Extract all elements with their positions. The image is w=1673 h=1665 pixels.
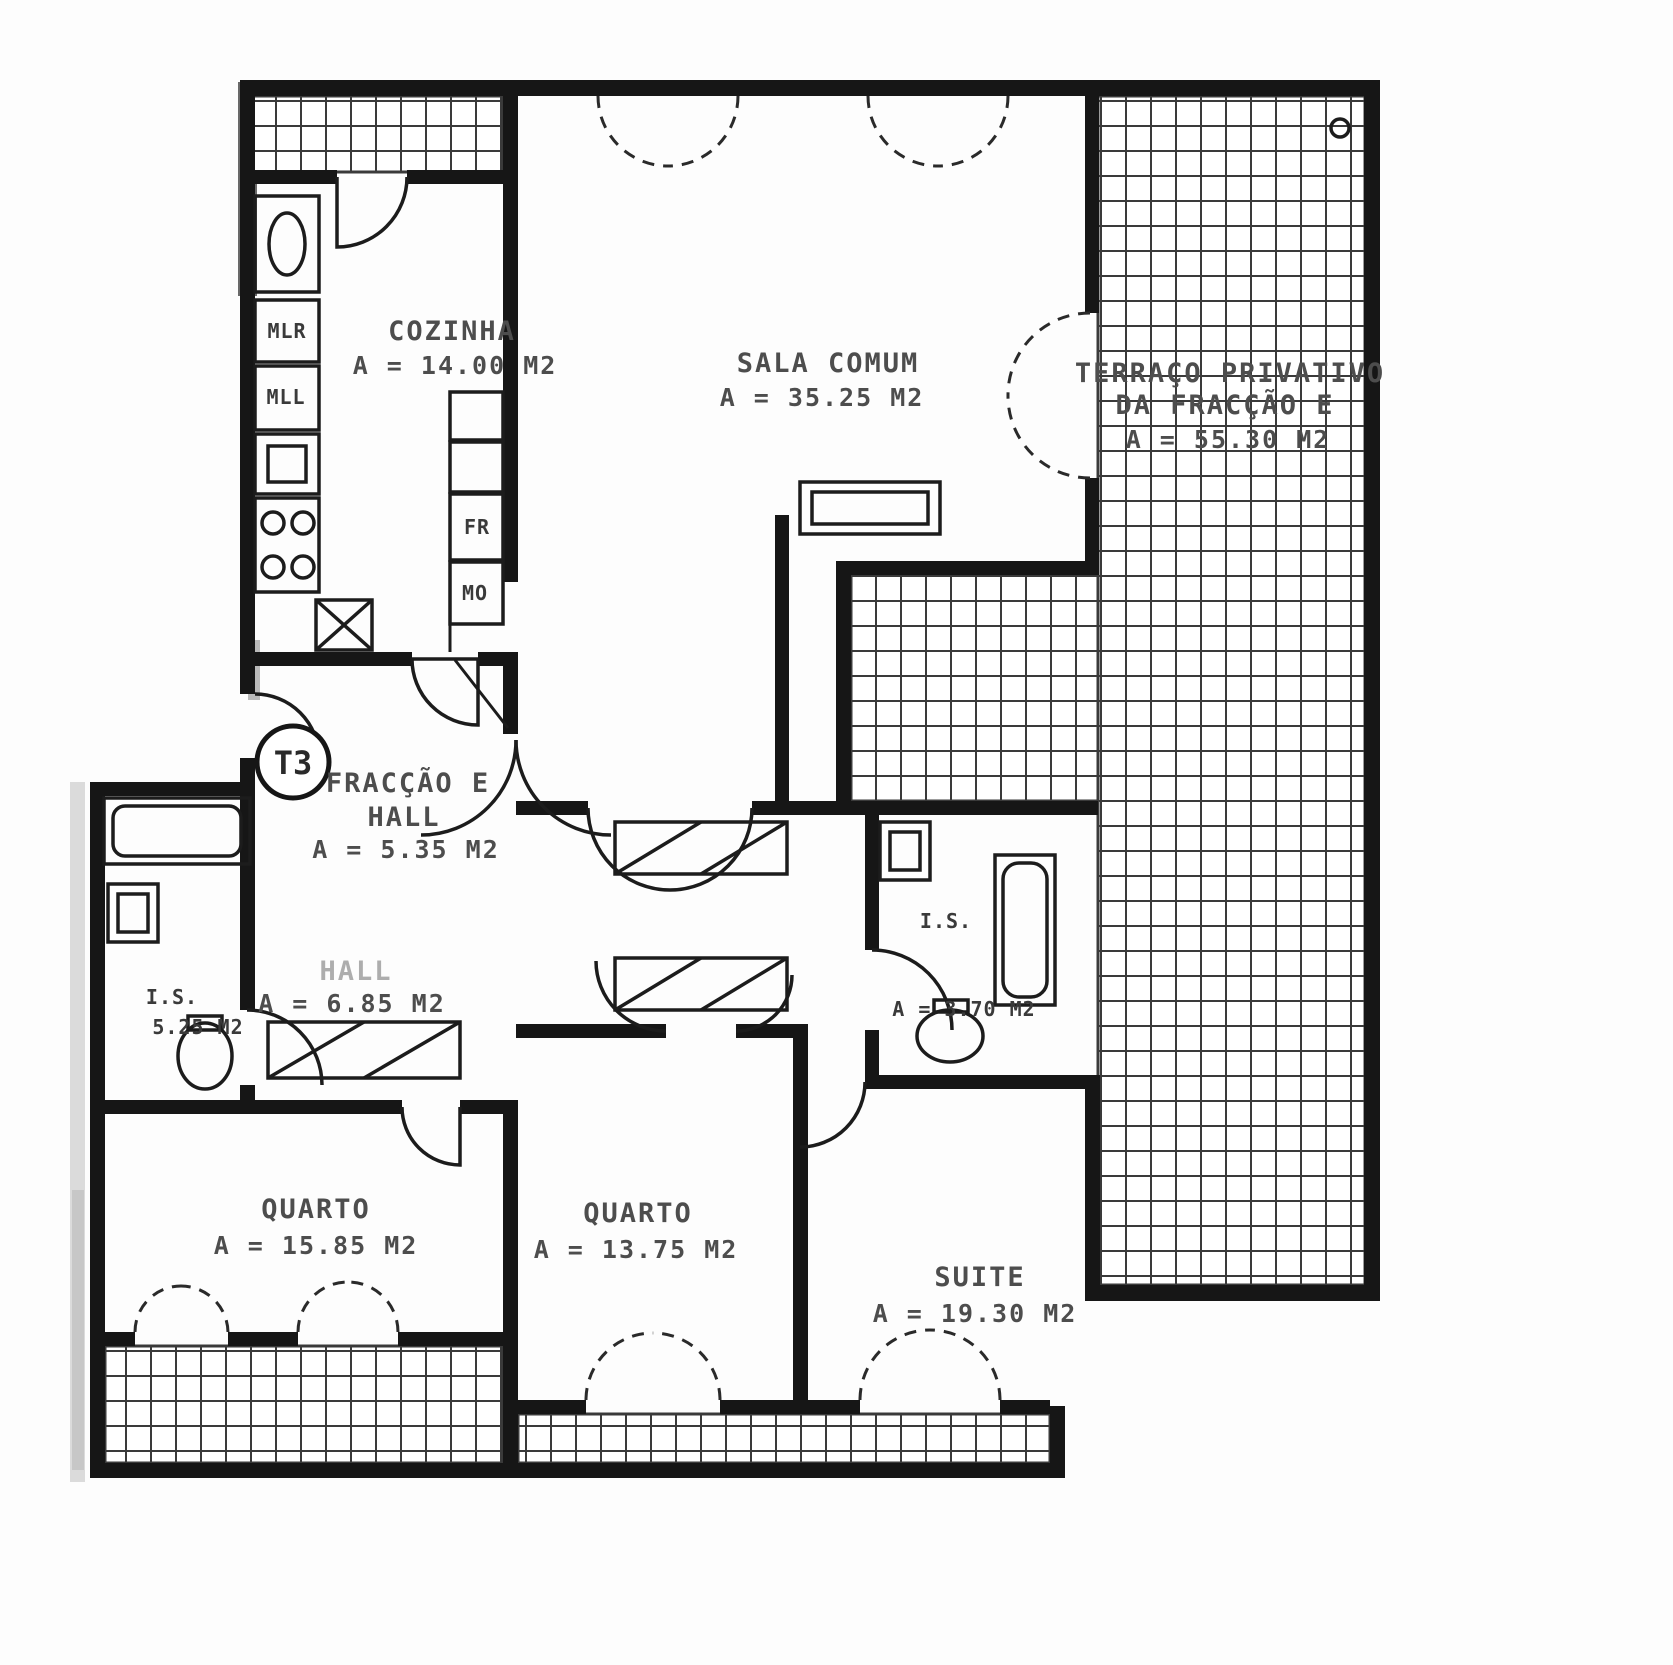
private-terrace-tiles — [1098, 96, 1365, 1285]
hall-name: HALL — [319, 956, 392, 987]
counter-box-1 — [450, 392, 503, 440]
suite-area: A = 19.30 M2 — [873, 1299, 1078, 1328]
quarto1-name: QUARTO — [261, 1194, 371, 1225]
wardrobe-corridor-2 — [615, 958, 787, 1010]
fraccao-name: FRACÇÃO E — [326, 767, 490, 799]
floorplan-drawing: T3 COZINHA A = 14.00 M2 SALA COMUM A = 3… — [0, 0, 1673, 1665]
fraccao-name2: HALL — [367, 802, 440, 833]
mo-label: MO — [462, 581, 488, 605]
fraccao-area: A = 5.35 M2 — [312, 835, 500, 864]
laundry-tub — [255, 196, 319, 292]
balcony-bottom-left-tiles — [105, 1346, 503, 1463]
quarto2-door-arc-1 — [596, 961, 666, 1031]
counter-box-2 — [450, 442, 503, 492]
service-door-line — [455, 660, 508, 728]
unit-type-label: T3 — [274, 744, 313, 782]
bathtub-left — [104, 798, 250, 864]
quarto2-name: QUARTO — [583, 1198, 693, 1229]
unit-type-badge: T3 — [257, 726, 329, 798]
quarto1-area: A = 15.85 M2 — [214, 1231, 419, 1260]
mll-label: MLL — [266, 385, 305, 409]
terraco-name: TERRAÇO PRIVATIVO — [1075, 358, 1385, 389]
dishwasher-box — [255, 434, 319, 494]
is-left-area: 5.25 M2 — [152, 1015, 243, 1039]
stove — [255, 498, 319, 592]
quarto1-door-arc — [402, 1107, 460, 1165]
sink-right-1 — [880, 822, 930, 880]
kitchen-door-arc — [412, 659, 478, 725]
mlr-label: MLR — [267, 319, 306, 343]
sala-name: SALA COMUM — [737, 348, 920, 379]
suite-name: SUITE — [934, 1262, 1025, 1293]
wardrobe-corridor-1 — [615, 822, 787, 874]
balcony-bottom-center-tiles — [518, 1414, 1050, 1463]
hall-area: A = 6.85 M2 — [258, 989, 446, 1018]
terraco-name2: DA FRACÇÃO E — [1115, 389, 1334, 421]
suite-door-arc — [800, 1082, 865, 1147]
sala-area: A = 35.25 M2 — [720, 383, 925, 412]
bathtub-right — [995, 855, 1055, 1005]
cozinha-name: COZINHA — [388, 316, 516, 347]
fr-label: FR — [464, 515, 490, 539]
floorplan-page: T3 COZINHA A = 14.00 M2 SALA COMUM A = 3… — [0, 0, 1673, 1665]
is-right-area: A = 3.70 M2 — [892, 997, 1035, 1021]
cozinha-area: A = 14.00 M2 — [353, 351, 558, 380]
sideboard — [800, 482, 940, 534]
is-right-name: I.S. — [920, 909, 972, 933]
quarto2-area: A = 13.75 M2 — [534, 1235, 739, 1264]
kitchen-balcony-tiles — [250, 96, 503, 172]
sink-left — [108, 884, 158, 942]
terraco-area: A = 55.30 M2 — [1126, 425, 1331, 454]
balcony-kitchen-door-arc — [337, 177, 407, 247]
patio-tiles — [851, 575, 1098, 801]
is-left-name: I.S. — [146, 985, 198, 1009]
kitchen-sink — [316, 600, 372, 650]
hall-door-arc-2 — [516, 740, 611, 835]
